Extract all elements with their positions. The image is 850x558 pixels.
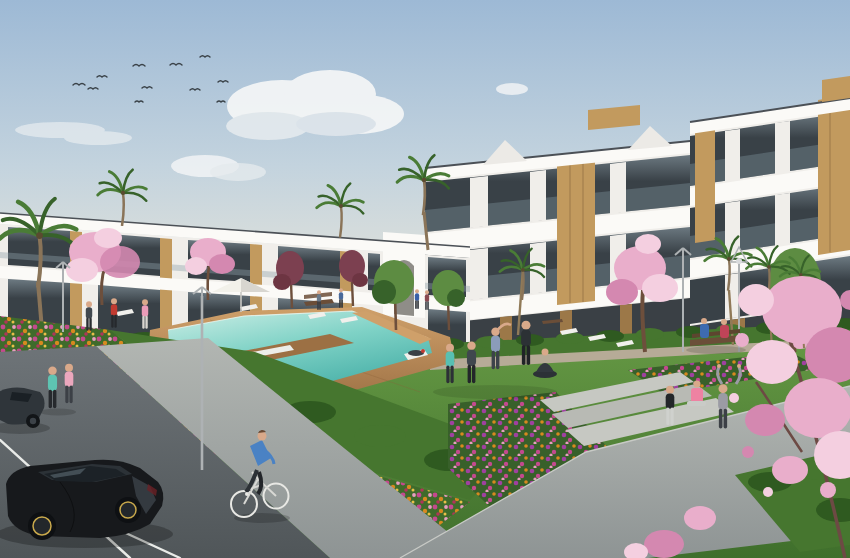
cloud-puff [496,83,528,95]
render-canvas [0,0,850,558]
wood-panel [818,95,850,255]
wood-panel [557,151,595,305]
rooftop-wood-box [822,76,850,102]
architectural-render-image [0,0,850,558]
